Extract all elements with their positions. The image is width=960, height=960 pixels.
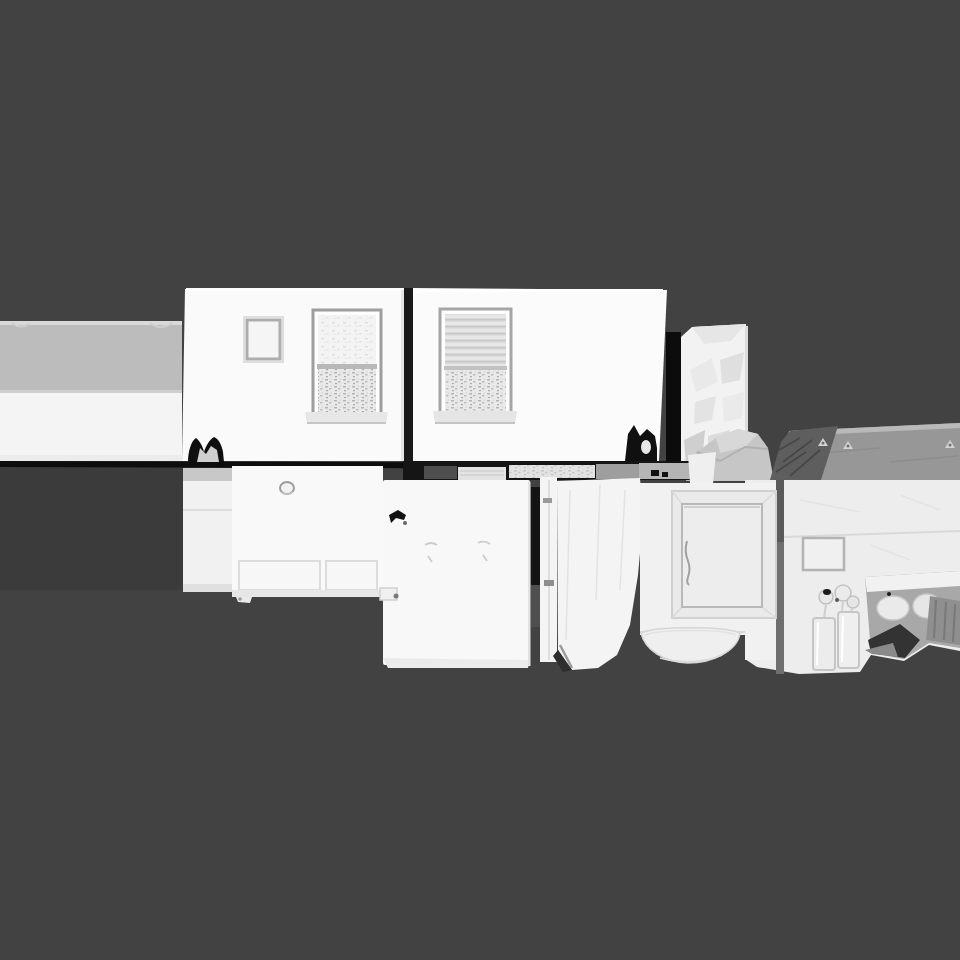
right-cabinet-face <box>745 480 960 674</box>
segment-black-bit <box>651 470 659 476</box>
window-1 <box>305 310 388 424</box>
window-2-bottom-pane <box>445 370 506 412</box>
appliance-latch-dot <box>394 594 399 599</box>
window-2 <box>433 309 517 424</box>
segment-light <box>458 467 506 480</box>
glassware <box>813 585 859 670</box>
appliance-right-shade <box>528 482 531 666</box>
slab-upper-band <box>0 321 182 392</box>
faucet-dot <box>835 598 839 602</box>
small-window <box>247 320 280 359</box>
floor-shadow <box>0 466 184 590</box>
module-1-right-shade <box>401 290 404 461</box>
seam-bar-dark-top <box>776 480 784 542</box>
frame-black-strip <box>531 487 540 587</box>
white-wedge <box>688 452 716 484</box>
switch-plate <box>803 538 844 570</box>
drawer-2 <box>326 561 377 590</box>
left-countertop-slab <box>0 321 182 461</box>
module-2-top-light <box>415 289 663 292</box>
window-2-sill-shadow <box>435 422 515 424</box>
faucet-dark-spot <box>823 589 831 595</box>
window-2-mid-bar <box>444 366 507 370</box>
window-1-top-noise <box>318 315 376 365</box>
module-1-top-light <box>186 288 403 291</box>
slab-lower-band <box>0 393 182 458</box>
cabinet-foot-dot <box>238 597 242 601</box>
frame-hinge-mark <box>544 580 554 586</box>
segment-black-bit <box>662 472 668 477</box>
appliance-scuff-dot <box>403 521 407 525</box>
appliance-latch <box>380 588 397 600</box>
appliance-panel <box>380 480 531 668</box>
segment-speckle-noise <box>509 465 595 478</box>
corner-notch-highlight <box>641 440 651 454</box>
window-1-mid-bar <box>317 364 377 369</box>
recess-dark-dot <box>887 592 891 596</box>
pillar-gap <box>666 332 681 463</box>
cabinet-door <box>682 504 762 607</box>
kitchen-counter <box>770 423 960 480</box>
cabinet-side-shade <box>183 584 232 592</box>
appliance-face <box>383 480 530 665</box>
window-2-blinds <box>445 314 506 368</box>
window-1-sill-shadow <box>307 422 386 424</box>
faucet-knob <box>847 596 859 608</box>
segment-gray <box>596 464 639 479</box>
frame-hinge-mark <box>543 498 552 503</box>
wall-module-1 <box>182 288 404 462</box>
cabinet-door-unit <box>640 483 776 663</box>
recess-crumple <box>877 596 909 620</box>
3d-viewport[interactable] <box>0 0 960 960</box>
cabinet-side-strip <box>183 468 232 592</box>
segment-dark <box>424 466 457 479</box>
cabinet-side-cap <box>183 468 232 481</box>
drawer-1 <box>239 561 320 590</box>
frame-gray-strip <box>531 585 540 627</box>
slab-bottom-strip <box>0 455 182 461</box>
cabinet-bottom-shade <box>232 590 383 597</box>
mesh-render-canvas <box>0 0 960 960</box>
wall-module-2 <box>413 288 667 461</box>
window-1-bottom-pane <box>318 369 376 412</box>
lower-cabinet <box>183 466 383 603</box>
slab-seam <box>0 390 182 393</box>
